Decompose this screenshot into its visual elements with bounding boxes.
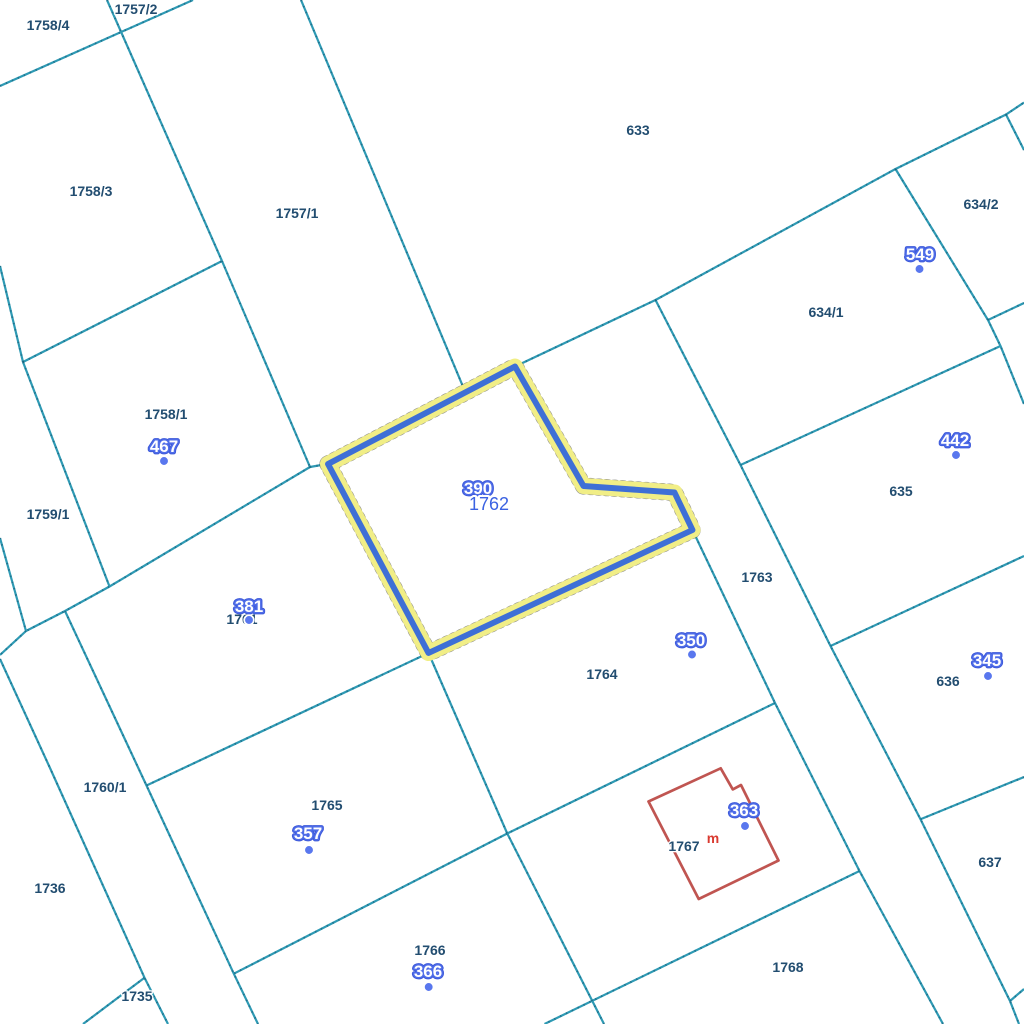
svg-text:366: 366 — [414, 962, 442, 981]
svg-text:1735: 1735 — [121, 988, 152, 1004]
svg-text:381: 381 — [235, 597, 263, 616]
svg-text:467: 467 — [150, 437, 178, 456]
svg-text:1757/2: 1757/2 — [115, 1, 158, 17]
svg-text:345: 345 — [973, 651, 1001, 670]
svg-text:350: 350 — [677, 631, 705, 650]
svg-text:1760/1: 1760/1 — [84, 779, 127, 795]
svg-text:1757/1: 1757/1 — [276, 205, 319, 221]
svg-text:634/2: 634/2 — [963, 196, 998, 212]
svg-text:1736: 1736 — [34, 880, 65, 896]
svg-text:1759/1: 1759/1 — [27, 506, 70, 522]
svg-text:637: 637 — [978, 854, 1002, 870]
svg-text:634/1: 634/1 — [808, 304, 843, 320]
svg-text:549: 549 — [906, 245, 934, 264]
svg-text:1758/4: 1758/4 — [27, 17, 70, 33]
svg-text:1764: 1764 — [586, 666, 617, 682]
svg-text:1758/3: 1758/3 — [70, 183, 113, 199]
svg-text:635: 635 — [889, 483, 913, 499]
svg-text:363: 363 — [730, 801, 758, 820]
svg-text:633: 633 — [626, 122, 650, 138]
svg-text:1765: 1765 — [311, 797, 342, 813]
svg-text:1762: 1762 — [469, 494, 509, 514]
svg-text:357: 357 — [294, 824, 322, 843]
svg-text:1766: 1766 — [414, 942, 445, 958]
svg-text:1768: 1768 — [772, 959, 803, 975]
svg-text:1758/1: 1758/1 — [145, 406, 188, 422]
svg-text:442: 442 — [941, 431, 969, 450]
svg-text:m: m — [707, 830, 719, 846]
svg-text:1767: 1767 — [668, 838, 699, 854]
svg-text:636: 636 — [936, 673, 960, 689]
svg-text:1763: 1763 — [741, 569, 772, 585]
